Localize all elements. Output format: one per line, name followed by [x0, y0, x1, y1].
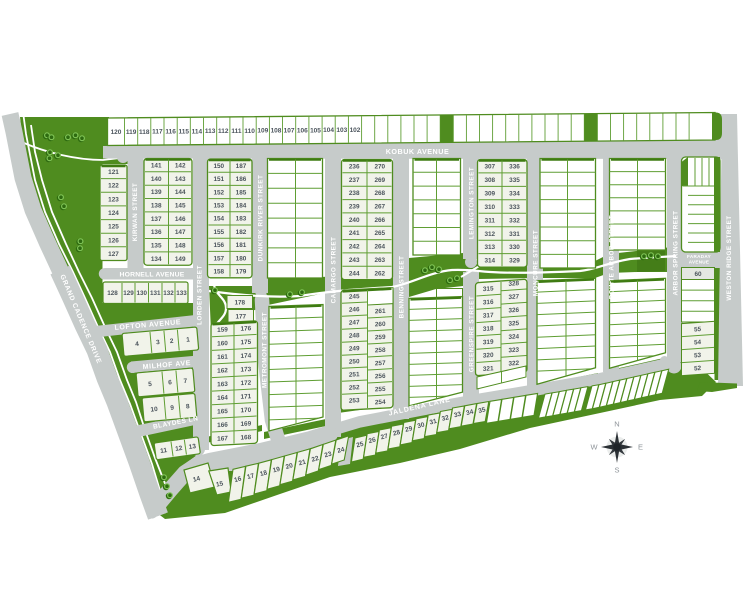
svg-text:130: 130	[137, 290, 148, 297]
svg-text:172: 172	[240, 380, 251, 388]
svg-text:143: 143	[175, 176, 186, 183]
svg-text:164: 164	[217, 394, 228, 402]
svg-text:331: 331	[509, 231, 520, 238]
svg-text:13: 13	[188, 443, 197, 451]
svg-text:METROMONT STREET: METROMONT STREET	[262, 312, 269, 388]
svg-text:254: 254	[375, 399, 386, 407]
svg-text:173: 173	[240, 366, 251, 374]
svg-text:183: 183	[236, 216, 247, 223]
svg-text:116: 116	[165, 129, 176, 136]
svg-text:177: 177	[235, 313, 246, 320]
svg-text:104: 104	[323, 127, 334, 134]
svg-text:MONCURE STREET: MONCURE STREET	[533, 230, 540, 296]
svg-text:147: 147	[175, 229, 186, 236]
svg-text:178: 178	[234, 299, 245, 306]
svg-text:169: 169	[240, 420, 251, 428]
svg-text:134: 134	[151, 256, 162, 263]
svg-text:149: 149	[175, 256, 186, 263]
svg-text:268: 268	[374, 190, 385, 197]
svg-text:237: 237	[349, 177, 360, 184]
svg-text:122: 122	[108, 183, 119, 190]
svg-text:135: 135	[151, 243, 162, 250]
svg-text:270: 270	[374, 164, 385, 171]
svg-text:E: E	[638, 443, 643, 452]
svg-text:334: 334	[509, 190, 520, 197]
svg-text:136: 136	[151, 229, 162, 236]
svg-text:LORDEN STREET: LORDEN STREET	[197, 265, 204, 325]
svg-text:249: 249	[349, 345, 360, 353]
svg-text:320: 320	[483, 352, 494, 360]
svg-text:133: 133	[176, 290, 187, 297]
svg-text:148: 148	[175, 243, 186, 250]
svg-text:W: W	[590, 443, 598, 452]
svg-text:180: 180	[236, 255, 247, 262]
svg-text:260: 260	[375, 321, 386, 329]
svg-text:245: 245	[349, 293, 360, 301]
svg-text:184: 184	[236, 203, 247, 210]
svg-text:150: 150	[213, 163, 224, 170]
svg-text:335: 335	[509, 177, 520, 184]
svg-text:321: 321	[483, 365, 494, 373]
svg-text:247: 247	[349, 319, 360, 327]
svg-text:125: 125	[108, 224, 119, 231]
svg-text:318: 318	[483, 325, 494, 333]
svg-text:182: 182	[236, 229, 247, 236]
svg-text:330: 330	[509, 244, 520, 251]
svg-text:246: 246	[349, 306, 360, 314]
svg-text:131: 131	[150, 290, 161, 297]
svg-text:DUNKIRK RIVER STREET: DUNKIRK RIVER STREET	[258, 175, 265, 262]
svg-text:121: 121	[108, 169, 119, 176]
svg-text:CAMARGO STREET: CAMARGO STREET	[331, 237, 338, 304]
svg-text:ARBOR SPRING STREET: ARBOR SPRING STREET	[673, 210, 680, 295]
svg-text:FARADAY: FARADAY	[687, 254, 711, 259]
svg-text:111: 111	[231, 128, 242, 135]
svg-text:HORNELL AVENUE: HORNELL AVENUE	[120, 272, 185, 279]
svg-text:265: 265	[374, 230, 385, 237]
svg-text:336: 336	[509, 164, 520, 171]
svg-text:108: 108	[271, 128, 282, 135]
svg-text:255: 255	[375, 386, 386, 394]
svg-text:123: 123	[108, 196, 119, 203]
svg-text:176: 176	[240, 325, 251, 333]
svg-text:124: 124	[108, 210, 119, 217]
svg-text:319: 319	[483, 339, 494, 347]
svg-text:309: 309	[484, 190, 495, 197]
svg-text:119: 119	[126, 129, 137, 136]
svg-text:314: 314	[484, 258, 495, 265]
svg-text:267: 267	[374, 204, 385, 211]
svg-text:12: 12	[175, 445, 184, 453]
svg-text:141: 141	[151, 163, 162, 170]
svg-text:257: 257	[375, 360, 386, 368]
svg-text:163: 163	[217, 381, 228, 389]
svg-text:317: 317	[483, 312, 494, 320]
svg-text:315: 315	[483, 285, 494, 293]
svg-text:GREENSPIRE STREET: GREENSPIRE STREET	[469, 296, 476, 372]
svg-text:60: 60	[694, 271, 702, 278]
svg-text:LEMINGTON STREET: LEMINGTON STREET	[469, 167, 476, 239]
svg-text:110: 110	[244, 128, 255, 135]
svg-text:325: 325	[508, 320, 519, 328]
svg-text:256: 256	[375, 373, 386, 381]
svg-text:128: 128	[107, 290, 118, 297]
svg-text:153: 153	[213, 203, 224, 210]
svg-text:161: 161	[217, 354, 228, 362]
svg-text:258: 258	[375, 347, 386, 355]
svg-text:53: 53	[694, 352, 702, 360]
svg-text:KIRWAN STREET: KIRWAN STREET	[132, 183, 139, 242]
svg-text:BENNING STREET: BENNING STREET	[399, 256, 406, 319]
svg-text:251: 251	[349, 371, 360, 379]
svg-text:55: 55	[694, 326, 702, 334]
svg-text:120: 120	[111, 129, 122, 136]
svg-text:327: 327	[508, 293, 519, 301]
svg-text:156: 156	[213, 242, 224, 249]
svg-text:253: 253	[349, 397, 360, 405]
svg-text:238: 238	[349, 190, 360, 197]
svg-text:187: 187	[236, 163, 247, 170]
svg-text:179: 179	[236, 269, 247, 276]
svg-text:AVENUE: AVENUE	[689, 260, 710, 265]
svg-text:107: 107	[284, 128, 295, 135]
svg-text:162: 162	[217, 367, 228, 375]
svg-text:261: 261	[375, 308, 386, 316]
svg-text:328: 328	[508, 280, 519, 288]
svg-text:115: 115	[179, 128, 190, 135]
svg-text:KOBUK AVENUE: KOBUK AVENUE	[386, 147, 450, 156]
svg-text:109: 109	[257, 128, 268, 135]
svg-text:144: 144	[175, 189, 186, 196]
svg-text:126: 126	[108, 237, 119, 244]
svg-text:248: 248	[349, 332, 360, 340]
svg-text:333: 333	[509, 204, 520, 211]
svg-text:160: 160	[217, 340, 228, 348]
svg-text:139: 139	[151, 189, 162, 196]
svg-text:155: 155	[213, 229, 224, 236]
svg-text:10: 10	[150, 406, 158, 414]
svg-text:240: 240	[349, 217, 360, 224]
svg-text:112: 112	[218, 128, 229, 135]
svg-text:242: 242	[349, 244, 360, 251]
svg-text:170: 170	[240, 407, 251, 415]
svg-text:140: 140	[151, 176, 162, 183]
svg-text:175: 175	[240, 339, 251, 347]
svg-text:132: 132	[163, 290, 174, 297]
svg-text:166: 166	[217, 422, 228, 430]
svg-text:186: 186	[236, 176, 247, 183]
svg-text:250: 250	[349, 358, 360, 366]
svg-text:308: 308	[484, 177, 495, 184]
svg-text:154: 154	[213, 216, 224, 223]
svg-text:324: 324	[508, 333, 519, 341]
svg-text:311: 311	[485, 217, 496, 224]
svg-text:263: 263	[374, 257, 385, 264]
svg-text:241: 241	[349, 230, 360, 237]
svg-text:117: 117	[152, 129, 163, 136]
svg-text:244: 244	[349, 270, 360, 277]
svg-text:168: 168	[240, 434, 251, 442]
svg-text:266: 266	[374, 217, 385, 224]
svg-text:307: 307	[484, 164, 495, 171]
svg-text:252: 252	[349, 384, 360, 392]
svg-text:171: 171	[240, 393, 251, 401]
svg-text:259: 259	[375, 334, 386, 342]
svg-text:323: 323	[508, 347, 519, 355]
svg-text:105: 105	[310, 127, 321, 134]
svg-text:114: 114	[192, 128, 203, 135]
svg-text:102: 102	[350, 127, 361, 134]
svg-text:165: 165	[217, 408, 228, 416]
svg-text:113: 113	[205, 128, 216, 135]
svg-text:239: 239	[349, 204, 360, 211]
svg-text:142: 142	[175, 163, 186, 170]
svg-text:127: 127	[108, 251, 119, 258]
svg-text:322: 322	[508, 360, 519, 368]
svg-text:316: 316	[483, 299, 494, 307]
svg-text:S: S	[614, 466, 619, 475]
svg-text:264: 264	[374, 244, 385, 251]
svg-text:326: 326	[508, 307, 519, 315]
svg-text:54: 54	[694, 339, 702, 347]
svg-text:269: 269	[374, 177, 385, 184]
svg-text:145: 145	[175, 203, 186, 210]
svg-text:106: 106	[297, 127, 308, 134]
svg-text:118: 118	[139, 129, 150, 136]
svg-text:310: 310	[484, 204, 495, 211]
svg-text:262: 262	[374, 270, 385, 277]
svg-text:WESTON RIDGE STREET: WESTON RIDGE STREET	[726, 215, 733, 300]
svg-text:151: 151	[213, 176, 224, 183]
svg-text:332: 332	[509, 217, 520, 224]
svg-text:167: 167	[217, 435, 228, 443]
svg-text:146: 146	[175, 216, 186, 223]
svg-text:185: 185	[236, 189, 247, 196]
svg-text:129: 129	[123, 290, 134, 297]
svg-text:137: 137	[151, 216, 162, 223]
svg-text:329: 329	[509, 258, 520, 265]
svg-text:N: N	[614, 420, 619, 429]
svg-text:11: 11	[160, 447, 168, 455]
svg-text:103: 103	[336, 127, 347, 134]
svg-text:157: 157	[213, 255, 224, 262]
svg-text:159: 159	[217, 326, 228, 334]
svg-text:138: 138	[151, 203, 162, 210]
svg-text:174: 174	[240, 352, 251, 360]
svg-text:152: 152	[213, 189, 224, 196]
svg-text:243: 243	[349, 257, 360, 264]
svg-text:52: 52	[694, 365, 702, 373]
svg-text:158: 158	[213, 269, 224, 276]
svg-text:POINTE ARBOR STREET: POINTE ARBOR STREET	[609, 215, 616, 299]
svg-text:236: 236	[349, 164, 360, 171]
svg-text:312: 312	[484, 231, 495, 238]
svg-text:181: 181	[236, 242, 247, 249]
svg-text:313: 313	[484, 244, 495, 251]
